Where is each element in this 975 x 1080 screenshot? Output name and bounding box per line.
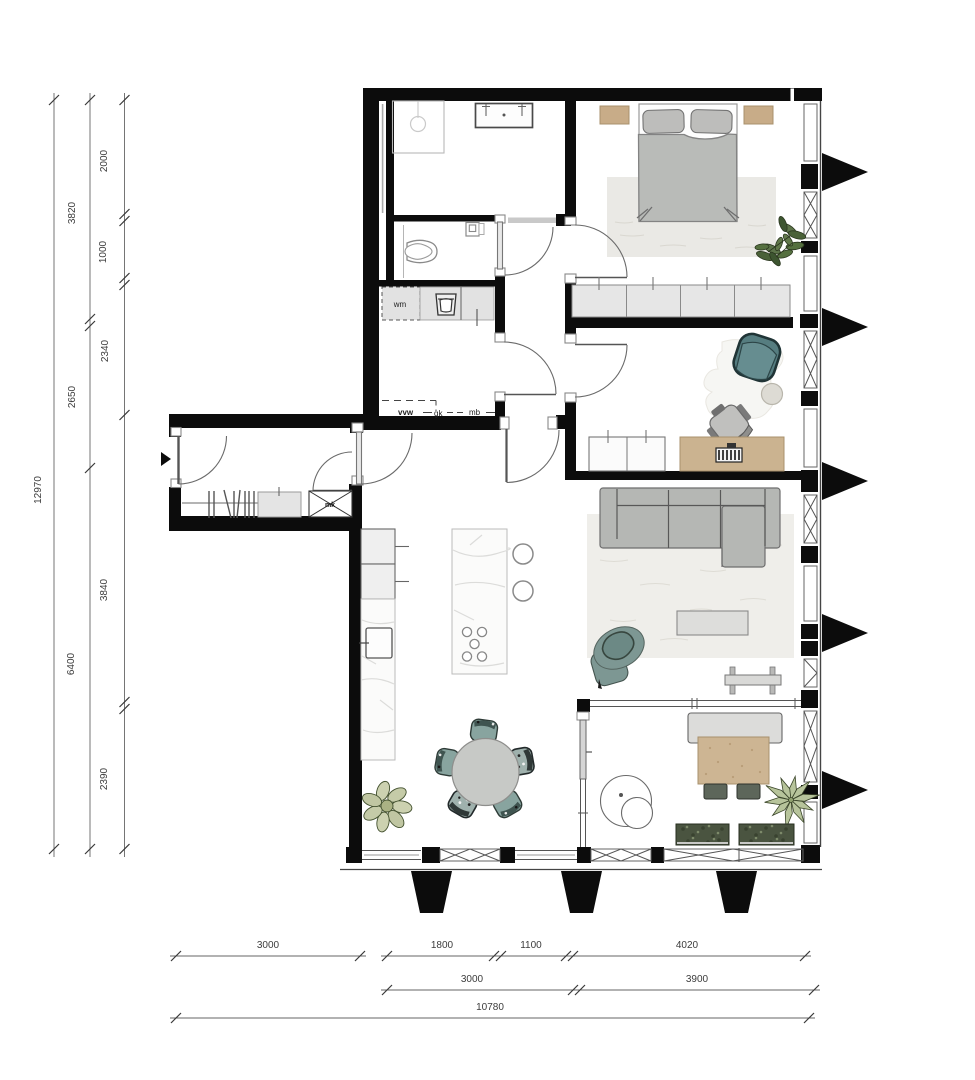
svg-text:3000: 3000 xyxy=(257,940,280,951)
svg-text:6400: 6400 xyxy=(66,652,77,675)
svg-text:mb: mb xyxy=(469,408,481,417)
svg-text:3000: 3000 xyxy=(461,974,484,985)
svg-text:3840: 3840 xyxy=(99,578,110,601)
svg-text:vvw: vvw xyxy=(398,408,414,417)
svg-text:4020: 4020 xyxy=(676,940,699,951)
svg-text:2340: 2340 xyxy=(100,339,111,362)
svg-text:3820: 3820 xyxy=(67,201,78,224)
svg-text:2390: 2390 xyxy=(99,767,110,790)
svg-text:2000: 2000 xyxy=(99,149,110,172)
svg-text:12970: 12970 xyxy=(33,476,44,504)
svg-text:mk: mk xyxy=(325,502,335,509)
svg-text:3900: 3900 xyxy=(686,974,709,985)
svg-text:wm: wm xyxy=(393,300,407,309)
svg-text:1100: 1100 xyxy=(520,940,542,951)
svg-text:10780: 10780 xyxy=(476,1002,504,1013)
svg-text:1800: 1800 xyxy=(431,940,454,951)
svg-text:gk: gk xyxy=(434,409,443,418)
svg-text:2650: 2650 xyxy=(67,385,78,408)
svg-text:1000: 1000 xyxy=(98,240,109,263)
